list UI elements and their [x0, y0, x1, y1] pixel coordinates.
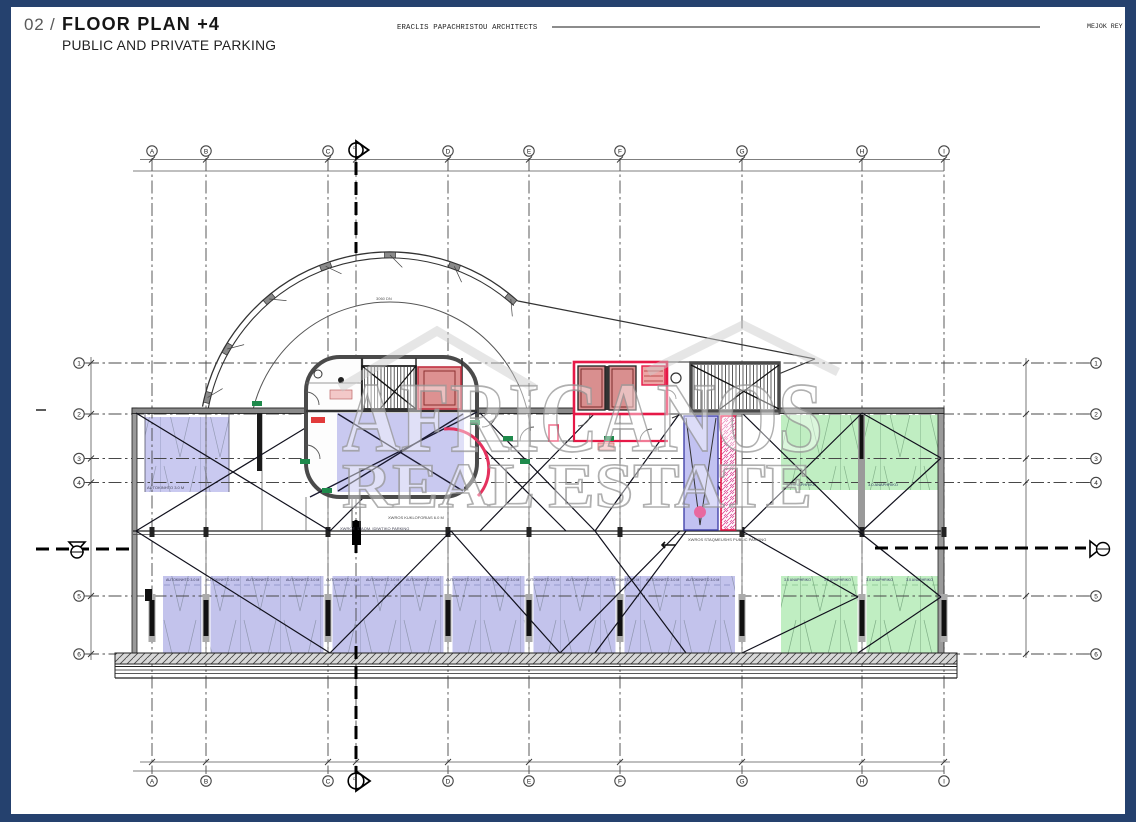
svg-text:XWROS STAQMEUSHS PUBLIC PARKIN: XWROS STAQMEUSHS PUBLIC PARKING	[688, 537, 766, 542]
svg-text:MEJOK REY: MEJOK REY	[1087, 23, 1123, 30]
svg-text:I: I	[943, 148, 945, 155]
svg-text:AUTOKINHTO 3.0 M: AUTOKINHTO 3.0 M	[246, 578, 279, 582]
svg-text:AUTOKINHTO 3.0 M: AUTOKINHTO 3.0 M	[286, 578, 319, 582]
svg-text:3060 DN: 3060 DN	[376, 296, 392, 301]
svg-text:G: G	[739, 778, 744, 785]
svg-text:AUTOKINHTO 3.0 M: AUTOKINHTO 3.0 M	[406, 578, 439, 582]
svg-text:AUTOKINHTO 3.0 M: AUTOKINHTO 3.0 M	[486, 578, 519, 582]
svg-text:AUTOKINHTO 3.0 M: AUTOKINHTO 3.0 M	[526, 578, 559, 582]
svg-text:FLOOR PLAN +4: FLOOR PLAN +4	[62, 14, 220, 34]
svg-text:6: 6	[77, 651, 81, 658]
svg-text:I: I	[943, 778, 945, 785]
svg-text:02 /: 02 /	[24, 15, 56, 34]
svg-text:3: 3	[1094, 456, 1098, 463]
svg-text:4: 4	[1094, 480, 1098, 487]
svg-text:3.0 ANAPHRIKO: 3.0 ANAPHRIKO	[866, 578, 893, 582]
svg-text:6: 6	[1094, 651, 1098, 658]
svg-text:AUTOKINHTO 3.0 M: AUTOKINHTO 3.0 M	[166, 578, 199, 582]
svg-text:AUTOKINHTO 3.0 M: AUTOKINHTO 3.0 M	[366, 578, 399, 582]
svg-text:B: B	[204, 778, 208, 785]
svg-text:D: D	[446, 778, 451, 785]
svg-text:PUBLIC AND PRIVATE PARKING: PUBLIC AND PRIVATE PARKING	[62, 38, 276, 53]
svg-text:A: A	[150, 148, 155, 155]
svg-text:F: F	[618, 778, 622, 785]
svg-text:H: H	[860, 778, 865, 785]
svg-text:2: 2	[1094, 411, 1098, 418]
svg-text:1: 1	[77, 360, 81, 367]
svg-text:3: 3	[77, 456, 81, 463]
svg-text:B: B	[204, 148, 208, 155]
svg-text:E: E	[527, 778, 532, 785]
svg-text:A: A	[150, 778, 155, 785]
svg-text:1: 1	[1094, 360, 1098, 367]
svg-text:C: C	[326, 778, 331, 785]
svg-text:G: G	[739, 148, 744, 155]
svg-text:AUTOKINHTO 3.0 M: AUTOKINHTO 3.0 M	[566, 578, 599, 582]
svg-text:E: E	[527, 148, 532, 155]
svg-text:AUTOKINHTO 3.0 M: AUTOKINHTO 3.0 M	[606, 578, 639, 582]
svg-text:F: F	[618, 148, 622, 155]
svg-text:5: 5	[77, 593, 81, 600]
svg-text:REAL ESTATE: REAL ESTATE	[342, 451, 812, 521]
svg-text:ERACLIS PAPACHRISTOU ARCHITECT: ERACLIS PAPACHRISTOU ARCHITECTS	[397, 24, 538, 32]
svg-text:AUTOKINHTO 3.0 M: AUTOKINHTO 3.0 M	[686, 578, 719, 582]
svg-text:H: H	[860, 148, 865, 155]
svg-text:D: D	[446, 148, 451, 155]
svg-text:2: 2	[77, 411, 81, 418]
svg-text:5: 5	[1094, 593, 1098, 600]
svg-text:XWROS STAQM. IDIWTIKO PARKING: XWROS STAQM. IDIWTIKO PARKING	[340, 526, 409, 531]
svg-text:3.0 ANAPHRIKO: 3.0 ANAPHRIKO	[784, 578, 811, 582]
svg-text:AUTOKINHTO 3.0 M: AUTOKINHTO 3.0 M	[326, 578, 359, 582]
svg-text:C: C	[326, 148, 331, 155]
svg-text:AUTOKINHTO 3.0 M: AUTOKINHTO 3.0 M	[147, 485, 184, 490]
svg-text:4: 4	[77, 480, 81, 487]
svg-text:AUTOKINHTO 3.0 M: AUTOKINHTO 3.0 M	[446, 578, 479, 582]
